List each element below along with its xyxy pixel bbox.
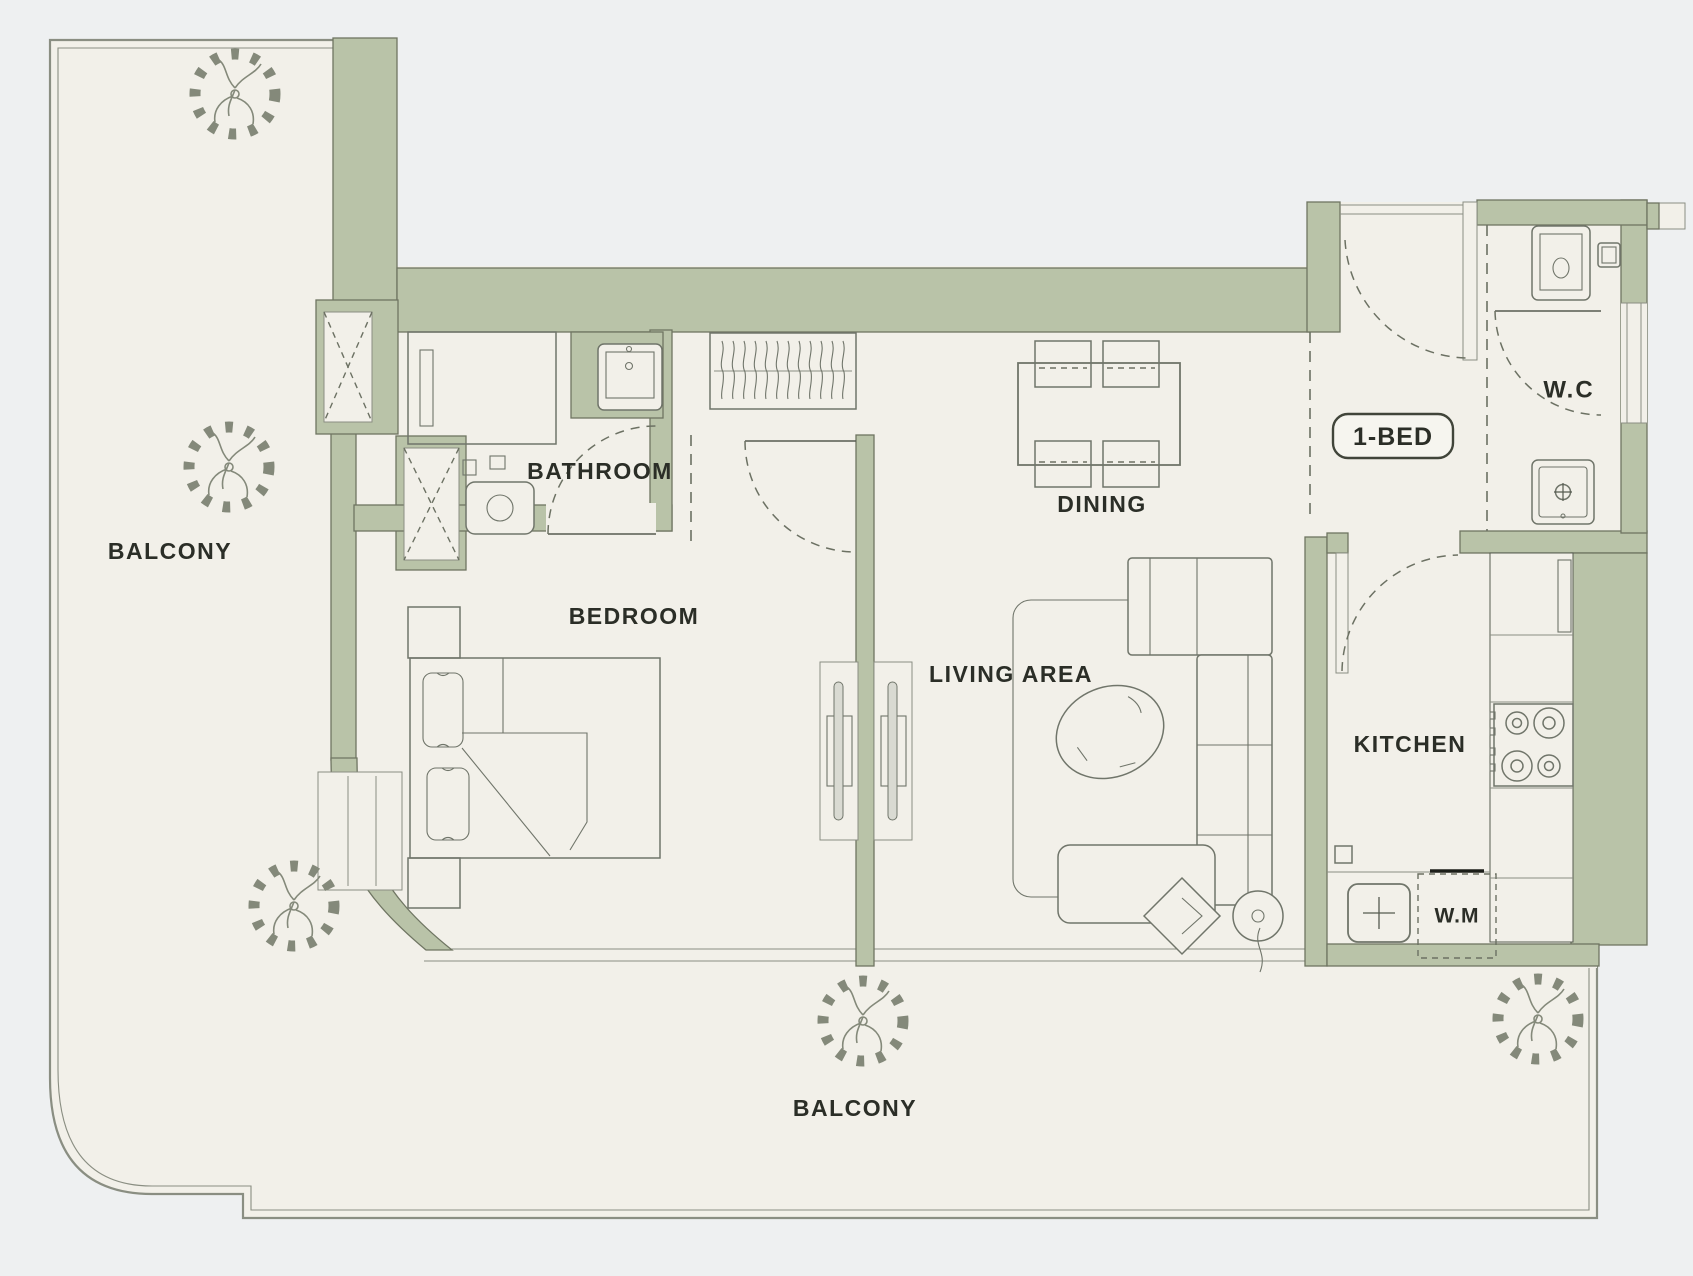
wall-top-right-notch-green: [1647, 203, 1659, 229]
door-handle-icon: [834, 682, 843, 820]
kitchen-door-leaf[interactable]: [1336, 553, 1348, 673]
door-handle-icon: [888, 682, 897, 820]
wc-window: [1621, 303, 1647, 423]
wall-kitchen-corner: [1327, 533, 1348, 553]
stove: [1490, 704, 1573, 786]
entry-door-leaf[interactable]: [1463, 202, 1477, 360]
bathroom-door-opening: [546, 503, 656, 533]
wall-partition-bedroom-living: [856, 435, 874, 966]
unit-badge: 1-BED: [1333, 414, 1453, 458]
wall-living-kitchen: [1305, 537, 1327, 966]
wall-top-left-vertical: [333, 38, 397, 332]
toilet: [466, 482, 534, 534]
room-label-bathroom: BATHROOM: [527, 458, 673, 484]
unit-badge-label: 1-BED: [1353, 423, 1433, 451]
room-label-kitchen: KITCHEN: [1354, 731, 1467, 757]
bathroom-sink: [598, 344, 662, 410]
room-label-wc: W.C: [1543, 377, 1594, 404]
floor-plan-drawing: BALCONY BATHROOM BEDROOM DINING LIVING A…: [0, 0, 1693, 1276]
room-label-dining: DINING: [1057, 491, 1147, 517]
label-washing-machine: W.M: [1435, 905, 1480, 928]
bedroom-balcony-door[interactable]: [318, 772, 402, 890]
wall-entry-stub: [1307, 202, 1340, 332]
room-label-balcony-bottom: BALCONY: [793, 1095, 917, 1121]
room-label-bedroom: BEDROOM: [569, 603, 700, 629]
service-shaft: [404, 448, 459, 560]
wall-top-horizontal: [397, 268, 1309, 332]
wall-kitchen-right: [1571, 553, 1647, 945]
room-label-living: LIVING AREA: [929, 661, 1093, 687]
wall-wc-top: [1477, 200, 1647, 225]
floor-plan-page: BALCONY BATHROOM BEDROOM DINING LIVING A…: [0, 0, 1693, 1276]
wall-wc-kitchen: [1460, 531, 1647, 553]
room-label-balcony-left: BALCONY: [108, 538, 232, 564]
wc-sink: [1532, 226, 1590, 300]
wall-kitchen-bottom: [1327, 944, 1599, 966]
